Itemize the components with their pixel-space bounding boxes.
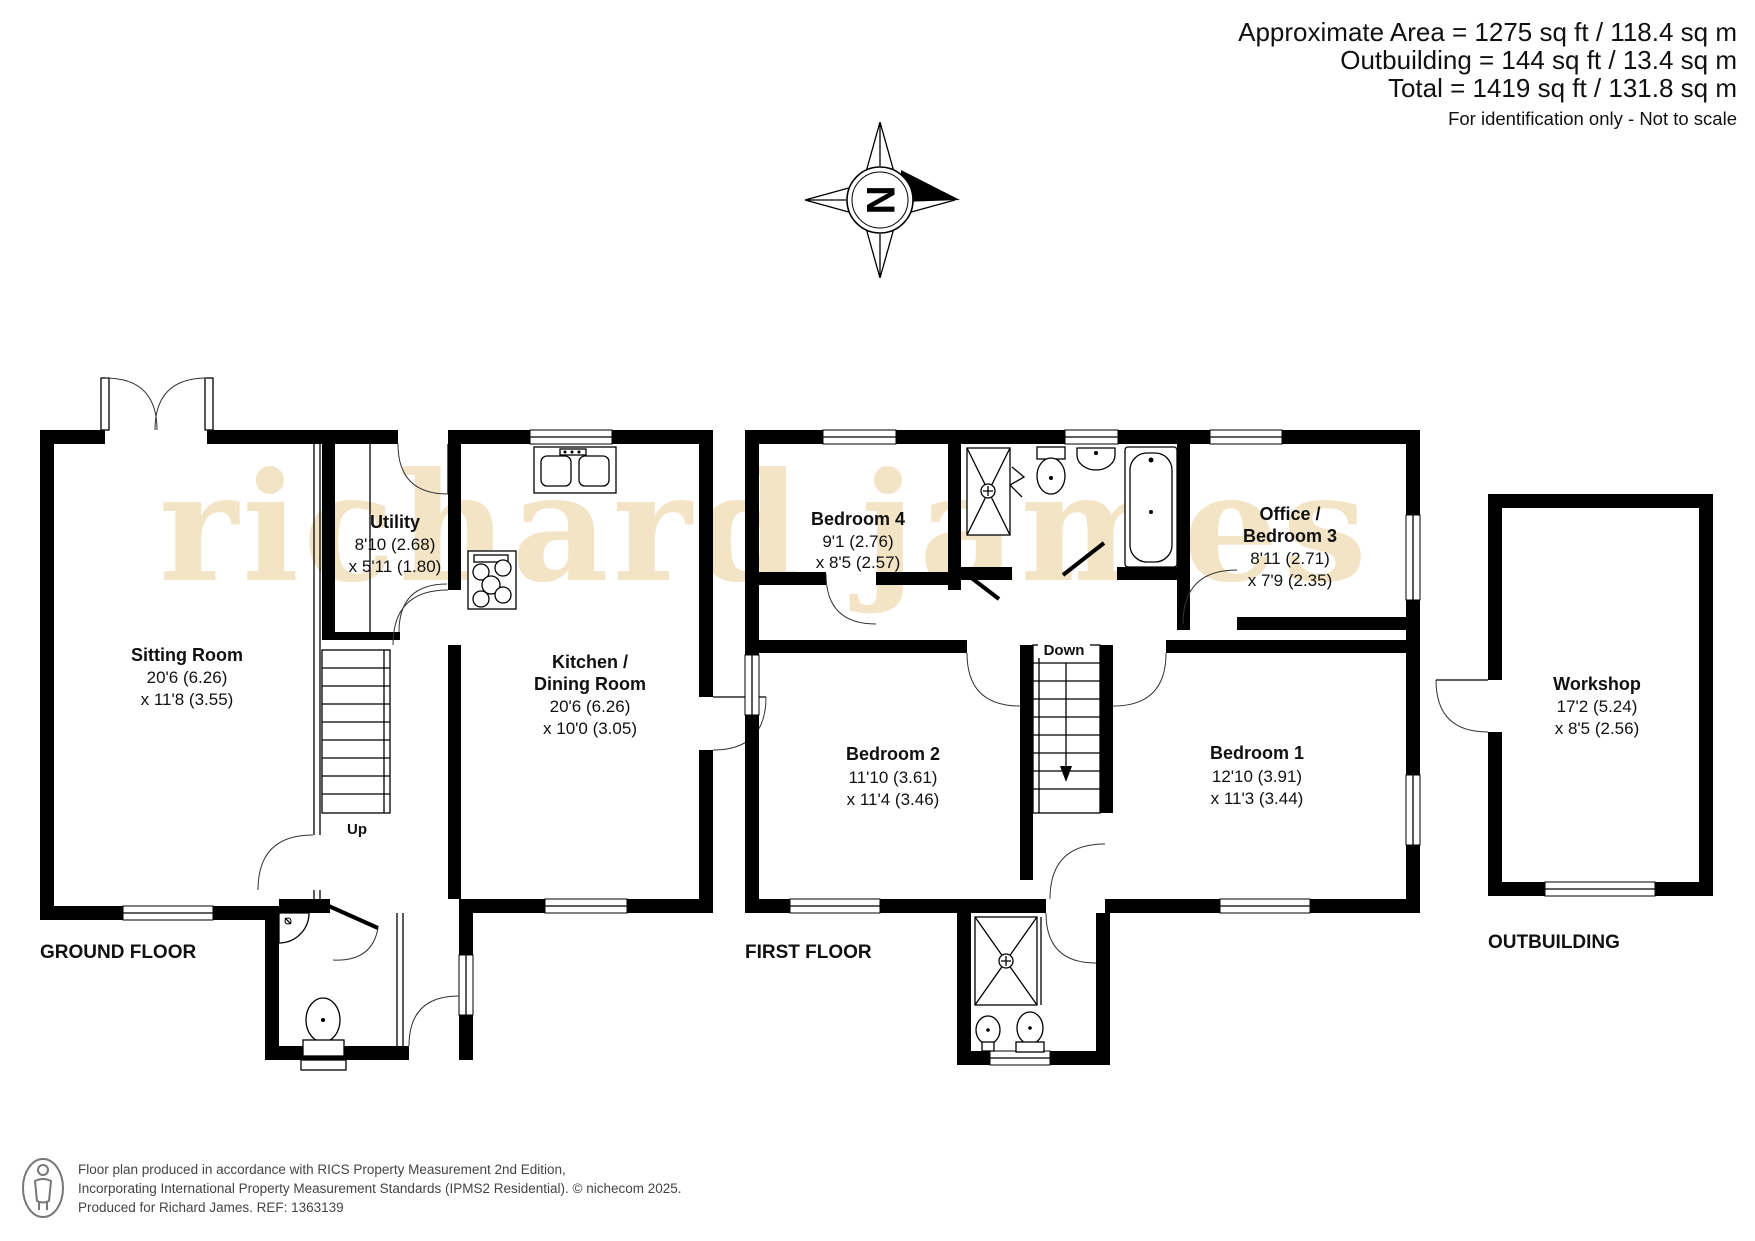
bedroom2-name: Bedroom 2	[846, 744, 940, 764]
bedroom4-dim1: 9'1 (2.76)	[822, 532, 893, 551]
first-floor-label: FIRST FLOOR	[745, 942, 872, 963]
kitchen-dim1: 20'6 (6.26)	[550, 697, 631, 716]
wc-basin	[279, 913, 309, 943]
bedroom2-door-arc	[967, 653, 1020, 706]
office-dim1: 8'11 (2.71)	[1250, 549, 1329, 568]
bathroom-toilet	[1037, 447, 1065, 494]
sitting-room-name: Sitting Room	[131, 645, 243, 665]
sitting-door-arc	[258, 835, 313, 890]
wc-door	[322, 903, 378, 960]
footer-text: Floor plan produced in accordance with R…	[78, 1160, 682, 1217]
bedroom2-dim1: 11'10 (3.61)	[849, 768, 938, 787]
footer-line1: Floor plan produced in accordance with R…	[78, 1160, 682, 1179]
stairs-down	[1033, 645, 1100, 813]
utility-dim1: 8'10 (2.68)	[355, 535, 436, 554]
bedroom2-dim2: x 11'4 (3.46)	[847, 790, 940, 809]
office-name2: Bedroom 3	[1243, 526, 1337, 546]
french-doors	[101, 378, 213, 430]
floorplan-canvas: richard james N	[0, 0, 1755, 1241]
kitchen-name: Kitchen /	[552, 652, 628, 672]
compass-letter: N	[858, 186, 902, 215]
office-name: Office /	[1259, 504, 1320, 524]
outbuilding-label: OUTBUILDING	[1488, 932, 1620, 953]
compass-rose: N	[805, 122, 960, 278]
workshop-dim2: x 8'5 (2.56)	[1555, 719, 1640, 738]
office-dim2: x 7'9 (2.35)	[1248, 571, 1333, 590]
sitting-room-dim1: 20'6 (6.26)	[147, 668, 228, 687]
bathtub	[1125, 447, 1177, 567]
lobby-door-arc	[409, 996, 459, 1046]
ensuite-basin	[976, 1016, 1000, 1051]
ensuite-toilet	[1016, 1012, 1044, 1052]
sitting-room-dim2: x 11'8 (3.55)	[141, 690, 234, 709]
floorplan-page: Approximate Area = 1275 sq ft / 118.4 sq…	[0, 0, 1755, 1241]
outbuilding-plan	[1436, 494, 1713, 896]
kitchen-sink	[534, 447, 616, 493]
workshop-dim1: 17'2 (5.24)	[1557, 697, 1638, 716]
ensuite-shower	[975, 917, 1041, 1005]
stairs-down-label: Down	[1044, 642, 1085, 659]
bedroom4-name: Bedroom 4	[811, 509, 905, 529]
nichecom-logo-icon	[20, 1157, 66, 1219]
kitchen-dim2: x 10'0 (3.05)	[543, 719, 637, 738]
bedroom1-dim1: 12'10 (3.91)	[1212, 767, 1302, 786]
footer-line2: Incorporating International Property Mea…	[78, 1179, 682, 1198]
ground-floor-label: GROUND FLOOR	[40, 942, 196, 963]
footer: Floor plan produced in accordance with R…	[20, 1157, 682, 1219]
bedroom1-door-arc	[1113, 653, 1166, 706]
bedroom4-dim2: x 8'5 (2.57)	[816, 553, 901, 572]
footer-line3: Produced for Richard James. REF: 1363139	[78, 1198, 682, 1217]
stairs-up	[322, 650, 390, 813]
bedroom1-dim2: x 11'3 (3.44)	[1211, 789, 1304, 808]
outbuilding-door	[1436, 680, 1488, 732]
kitchen-name2: Dining Room	[534, 674, 646, 694]
utility-name: Utility	[370, 512, 420, 532]
hob	[468, 551, 516, 609]
workshop-name: Workshop	[1553, 674, 1641, 694]
bedroom1-lower-door-arc	[1050, 844, 1105, 899]
stairs-up-label: Up	[347, 821, 367, 838]
ensuite-door-arc	[1046, 913, 1096, 963]
bedroom1-name: Bedroom 1	[1210, 743, 1304, 763]
utility-dim2: x 5'11 (1.80)	[349, 557, 442, 576]
